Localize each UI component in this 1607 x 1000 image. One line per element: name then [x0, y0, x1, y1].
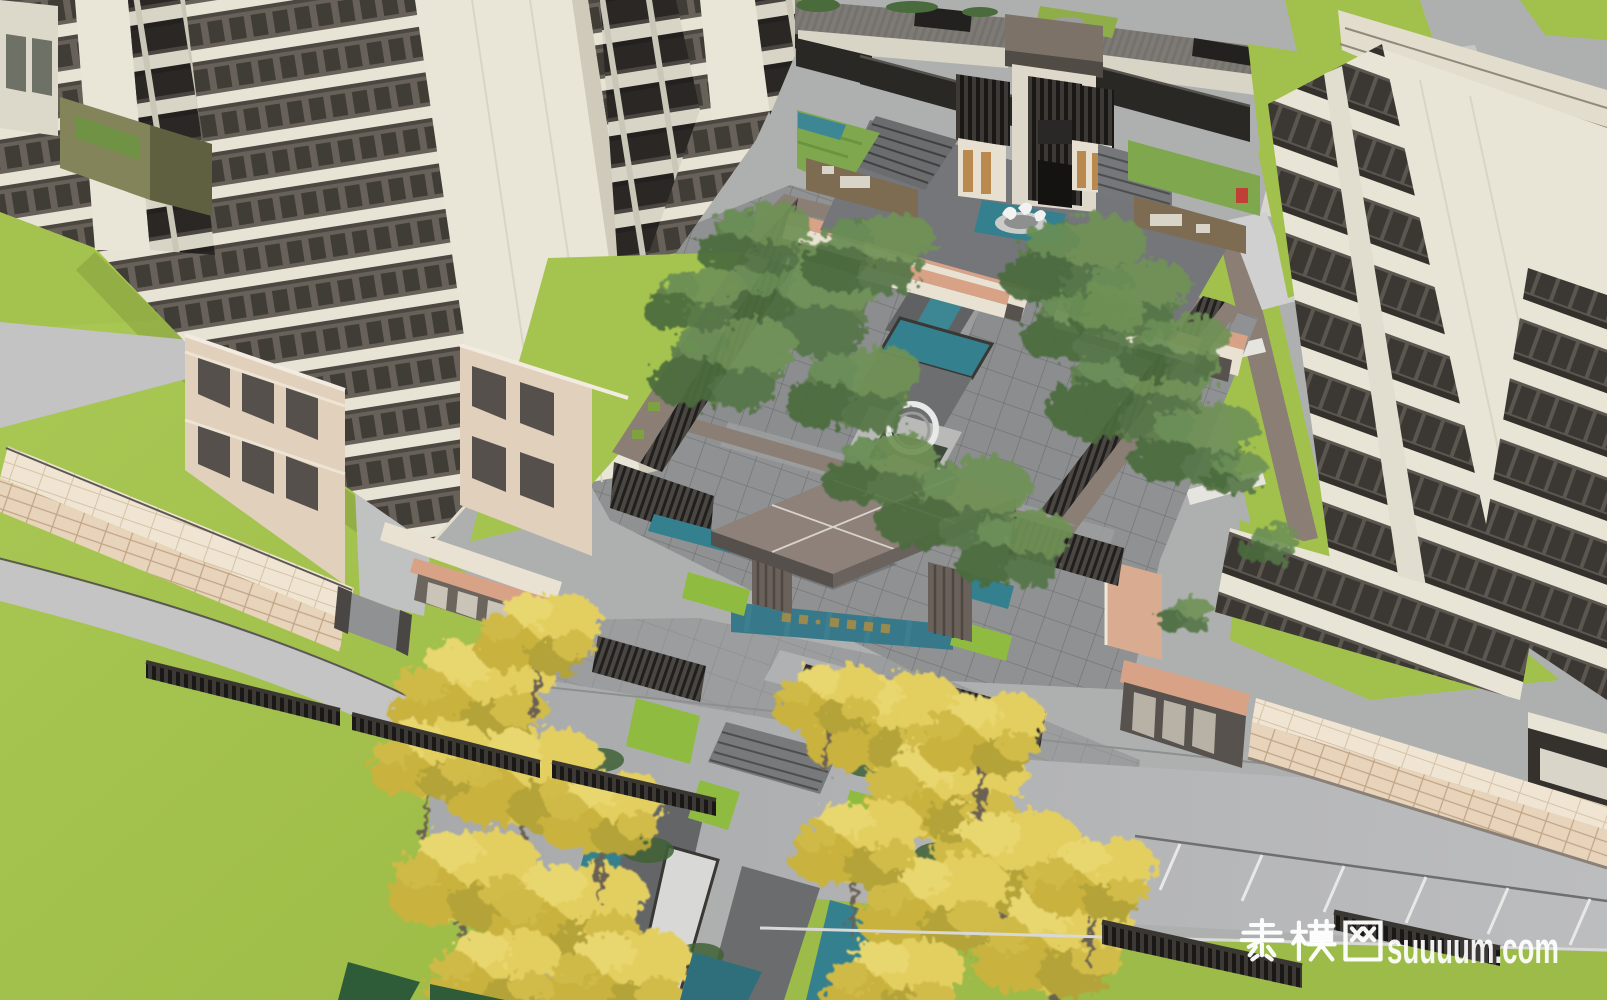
svg-text:suuuum.com: suuuum.com	[1387, 924, 1559, 973]
